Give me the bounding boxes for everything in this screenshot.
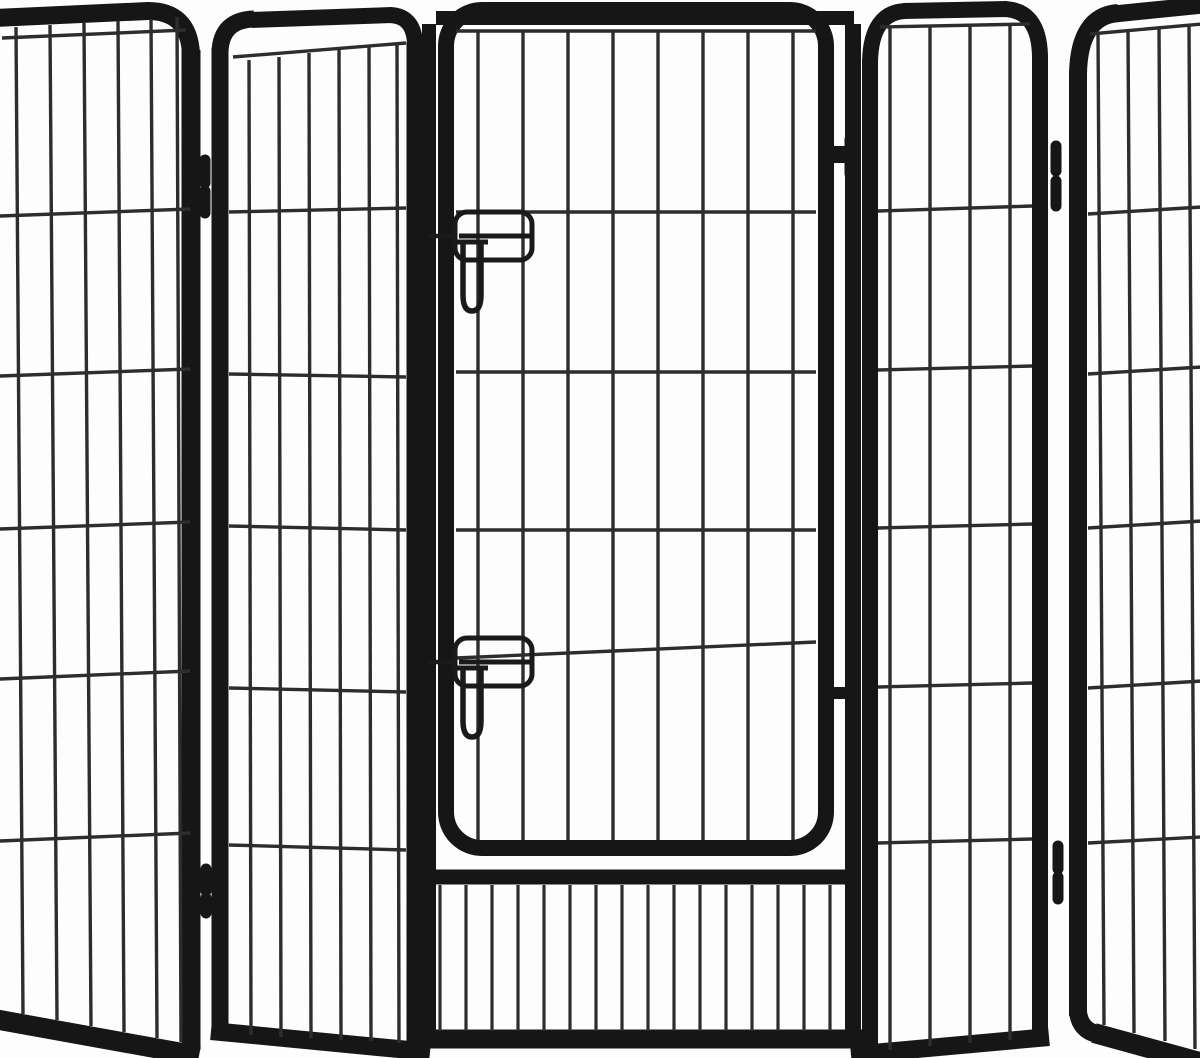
panel-b-bar	[249, 60, 251, 1035]
panel-b-bar	[369, 46, 371, 1041]
panel-a-top-rail	[0, 11, 148, 18]
panel-b-top-rail	[252, 15, 392, 20]
panel-e-top-rail	[1114, 5, 1200, 14]
panel-b-bar	[279, 57, 281, 1037]
panel-b-bar	[397, 43, 399, 1043]
panel-d-top-rail	[903, 9, 1007, 11]
playpen-photo-svg	[0, 0, 1200, 1058]
panel-b-bar	[309, 53, 311, 1038]
panel-b-bar	[339, 50, 341, 1040]
playpen-photo	[0, 0, 1200, 1058]
product-photo	[0, 0, 1200, 1058]
